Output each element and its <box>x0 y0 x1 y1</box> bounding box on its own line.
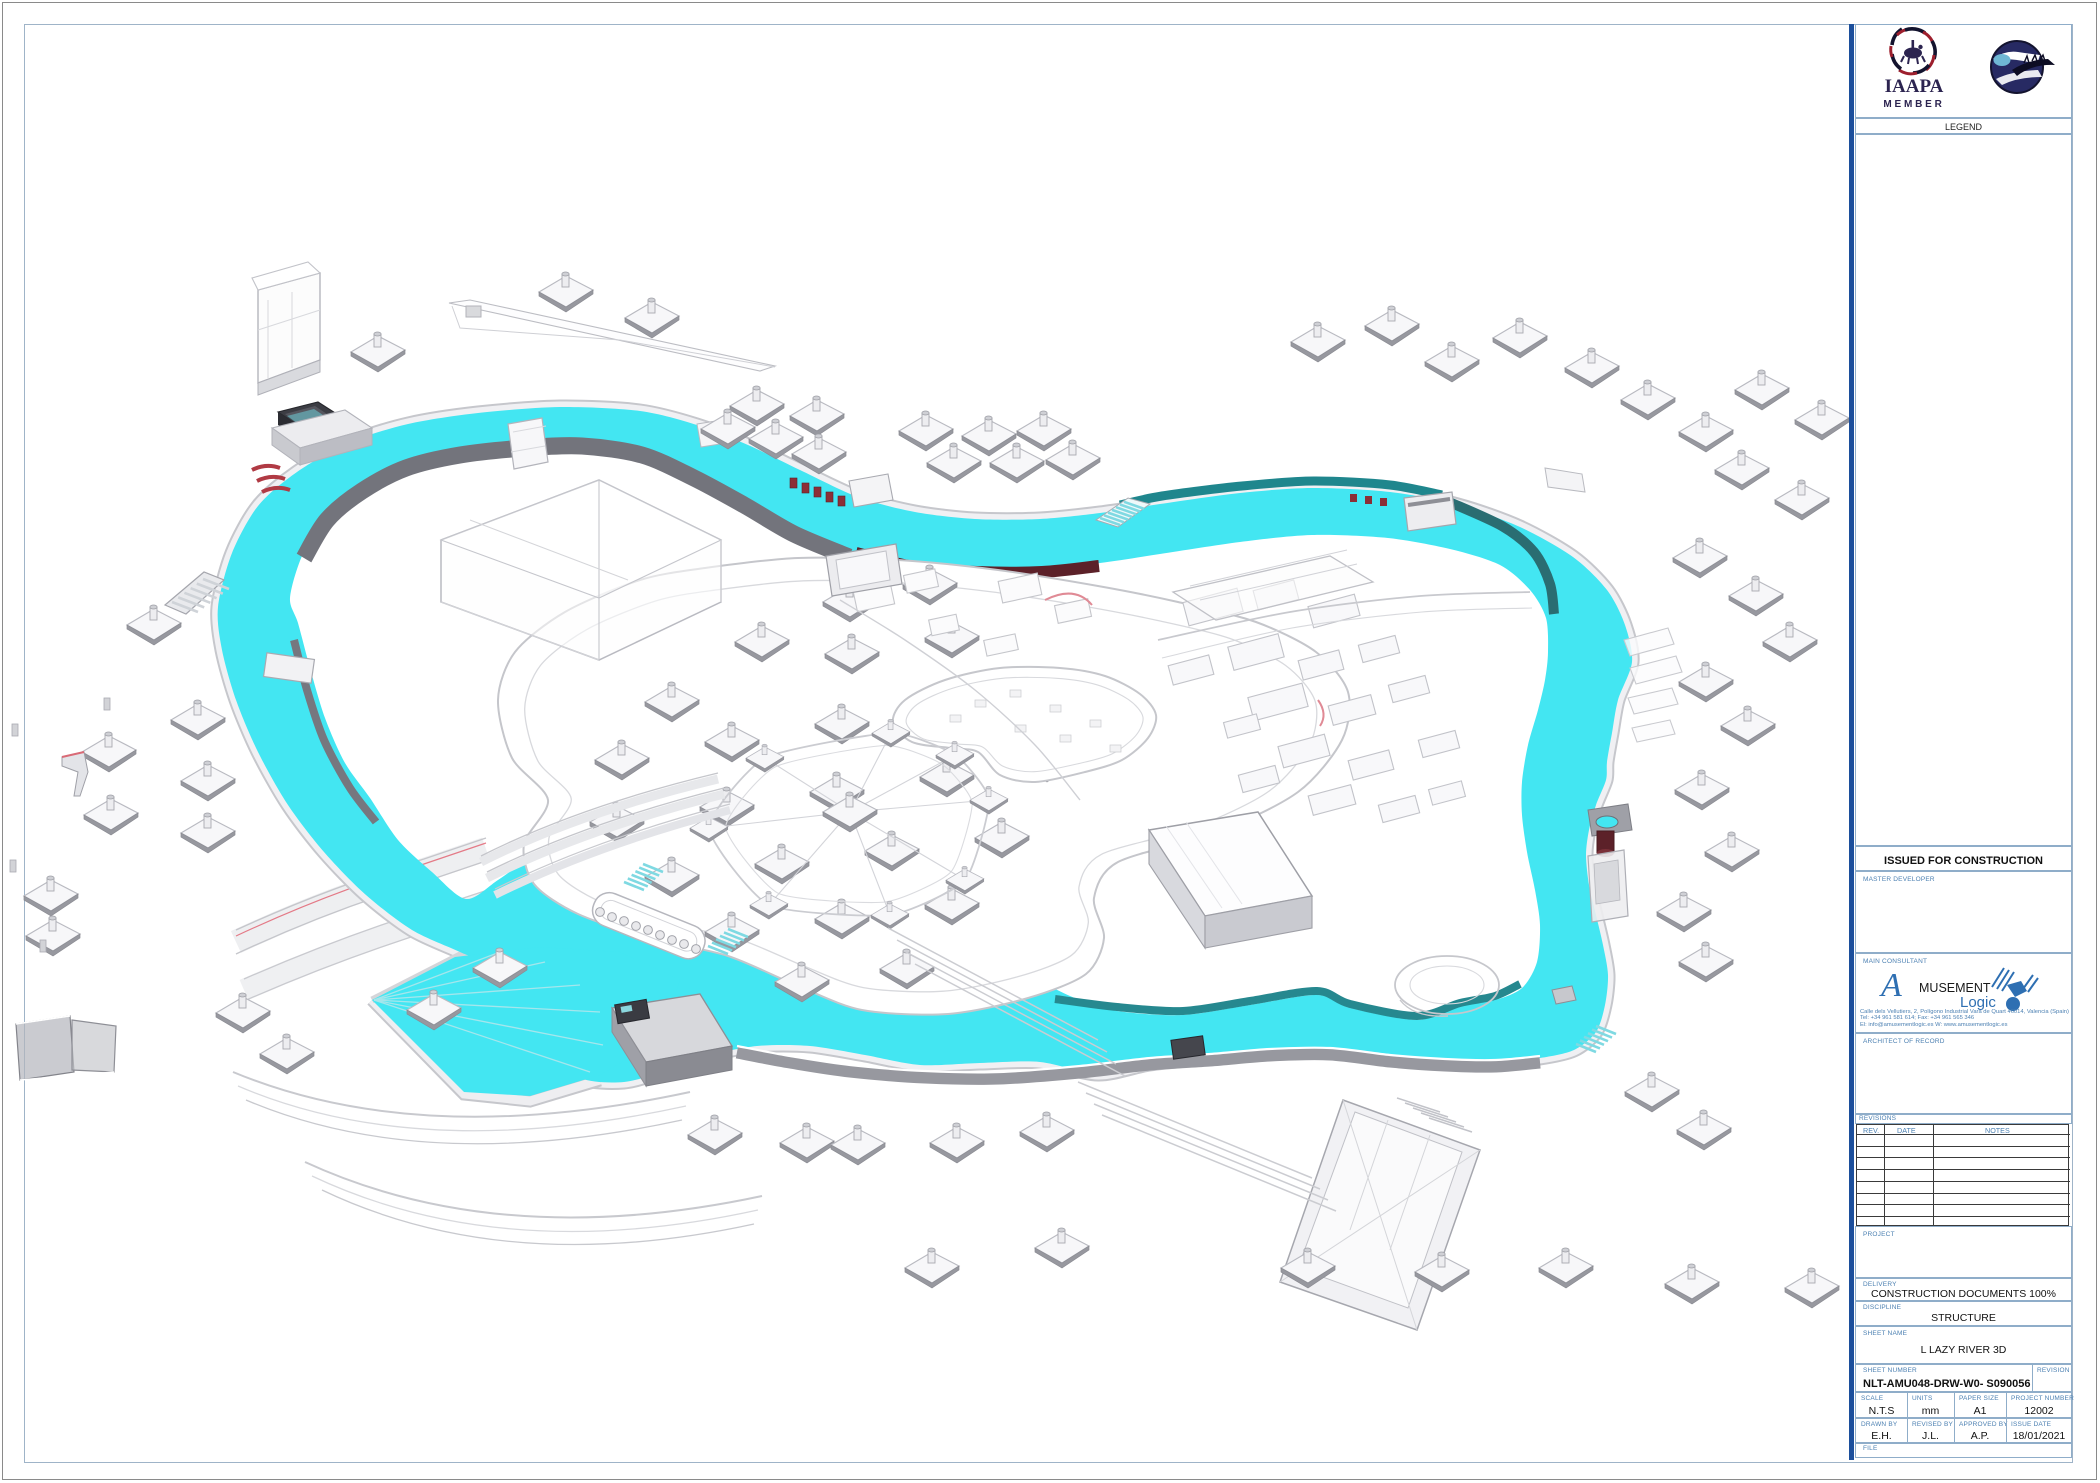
svg-text:MEMBER: MEMBER <box>1883 99 1944 110</box>
svg-text:IAAPA: IAAPA <box>1885 76 1944 97</box>
svg-text:MUSEMENT: MUSEMENT <box>1919 981 1991 995</box>
svg-text:A: A <box>1879 967 1902 1004</box>
